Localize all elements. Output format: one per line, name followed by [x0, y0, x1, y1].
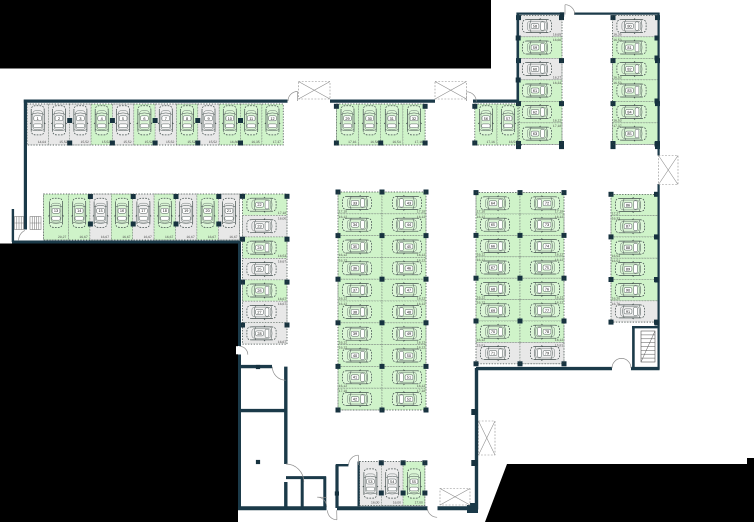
- svg-text:14: 14: [77, 209, 81, 213]
- svg-text:16: 16: [120, 209, 124, 213]
- svg-text:16,12: 16,12: [477, 258, 485, 262]
- svg-text:16,12: 16,12: [555, 338, 563, 342]
- svg-text:15,81: 15,81: [555, 343, 563, 347]
- svg-text:16,00: 16,00: [393, 500, 401, 504]
- svg-text:16,35: 16,35: [251, 140, 259, 144]
- svg-text:16,12: 16,12: [555, 295, 563, 299]
- svg-text:15,52: 15,52: [187, 140, 195, 144]
- svg-text:4: 4: [101, 117, 103, 121]
- svg-text:63: 63: [533, 132, 537, 136]
- svg-text:15,52: 15,52: [59, 140, 67, 144]
- svg-text:29: 29: [345, 117, 349, 121]
- svg-text:16,12: 16,12: [477, 301, 485, 305]
- svg-text:16,12: 16,12: [417, 346, 425, 350]
- svg-text:17,16: 17,16: [415, 140, 423, 144]
- svg-text:75: 75: [545, 266, 549, 270]
- svg-text:74: 74: [545, 245, 549, 249]
- svg-text:7: 7: [165, 117, 167, 121]
- svg-text:34: 34: [353, 223, 357, 227]
- svg-text:17,18: 17,18: [417, 389, 425, 393]
- svg-text:16,12: 16,12: [339, 258, 347, 262]
- svg-text:65: 65: [491, 223, 495, 227]
- svg-text:50: 50: [407, 354, 411, 358]
- svg-text:16,12: 16,12: [339, 346, 347, 350]
- svg-text:38: 38: [353, 310, 357, 314]
- svg-text:15: 15: [98, 209, 102, 213]
- svg-text:16,86: 16,86: [230, 140, 238, 144]
- svg-text:15,81: 15,81: [477, 343, 485, 347]
- svg-text:17,10: 17,10: [477, 210, 485, 214]
- svg-text:16,12: 16,12: [555, 215, 563, 219]
- svg-text:27: 27: [257, 310, 261, 314]
- svg-text:52: 52: [407, 398, 411, 402]
- svg-text:40: 40: [353, 354, 357, 358]
- svg-text:16,12: 16,12: [555, 301, 563, 305]
- svg-text:87: 87: [626, 225, 630, 229]
- svg-text:72: 72: [545, 202, 549, 206]
- svg-text:59: 59: [533, 46, 537, 50]
- svg-text:16,53: 16,53: [612, 254, 620, 258]
- svg-text:5: 5: [122, 117, 124, 121]
- svg-text:17,37: 17,37: [273, 140, 281, 144]
- svg-text:69: 69: [491, 309, 495, 313]
- svg-text:44: 44: [407, 223, 411, 227]
- svg-text:19: 19: [184, 209, 188, 213]
- svg-text:16,12: 16,12: [417, 253, 425, 257]
- svg-text:11: 11: [249, 117, 253, 121]
- svg-text:16,12: 16,12: [339, 302, 347, 306]
- svg-text:16,53: 16,53: [278, 254, 286, 258]
- svg-text:16,76: 16,76: [612, 302, 620, 306]
- svg-text:89: 89: [626, 267, 630, 271]
- svg-text:16,67: 16,67: [122, 235, 130, 239]
- svg-text:2: 2: [58, 117, 60, 121]
- svg-text:16,35: 16,35: [613, 33, 621, 37]
- svg-text:41: 41: [353, 376, 357, 380]
- svg-text:47: 47: [407, 289, 411, 293]
- svg-text:16,67: 16,67: [101, 235, 109, 239]
- svg-text:42: 42: [353, 398, 357, 402]
- svg-text:16,12: 16,12: [339, 253, 347, 257]
- svg-text:16,12: 16,12: [477, 253, 485, 257]
- svg-text:16,00: 16,00: [278, 216, 286, 220]
- svg-text:3: 3: [79, 117, 81, 121]
- svg-text:22: 22: [257, 203, 261, 207]
- svg-text:15,52: 15,52: [81, 140, 89, 144]
- svg-text:17,18: 17,18: [339, 210, 347, 214]
- svg-text:16,12: 16,12: [417, 384, 425, 388]
- svg-text:6: 6: [143, 117, 145, 121]
- svg-text:17,18: 17,18: [278, 211, 286, 215]
- svg-text:86: 86: [626, 203, 630, 207]
- svg-text:17,37: 17,37: [613, 124, 621, 128]
- svg-text:36: 36: [353, 267, 357, 271]
- svg-text:17: 17: [141, 209, 145, 213]
- svg-text:9: 9: [207, 117, 209, 121]
- svg-text:16,12: 16,12: [417, 340, 425, 344]
- svg-text:67: 67: [491, 266, 495, 270]
- svg-text:16,53: 16,53: [613, 81, 621, 85]
- svg-text:16,53: 16,53: [612, 259, 620, 263]
- svg-text:45: 45: [407, 245, 411, 249]
- svg-text:17,18: 17,18: [555, 210, 563, 214]
- svg-text:8: 8: [186, 117, 188, 121]
- svg-text:16,12: 16,12: [417, 297, 425, 301]
- svg-text:16,12: 16,12: [417, 258, 425, 262]
- svg-text:49: 49: [407, 332, 411, 336]
- svg-text:73: 73: [545, 223, 549, 227]
- svg-text:48: 48: [407, 310, 411, 314]
- svg-text:51: 51: [407, 376, 411, 380]
- svg-text:70: 70: [491, 330, 495, 334]
- svg-text:84: 84: [627, 111, 631, 115]
- svg-text:28: 28: [257, 332, 261, 336]
- svg-text:26: 26: [257, 289, 261, 293]
- svg-text:66: 66: [491, 245, 495, 249]
- svg-text:25: 25: [257, 268, 261, 272]
- svg-text:16,67: 16,67: [278, 297, 286, 301]
- svg-text:16,65: 16,65: [553, 33, 561, 37]
- svg-text:21: 21: [227, 209, 231, 213]
- svg-text:61: 61: [533, 89, 537, 93]
- svg-text:54: 54: [390, 480, 394, 484]
- svg-text:17,16: 17,16: [487, 140, 495, 144]
- svg-text:16,12: 16,12: [417, 302, 425, 306]
- svg-text:85: 85: [627, 132, 631, 136]
- svg-text:62: 62: [533, 111, 537, 115]
- svg-text:17,16: 17,16: [348, 140, 356, 144]
- svg-text:68: 68: [491, 287, 495, 291]
- svg-text:35: 35: [353, 245, 357, 249]
- svg-text:20,27: 20,27: [58, 235, 66, 239]
- svg-text:16,12: 16,12: [477, 338, 485, 342]
- svg-text:16,53: 16,53: [613, 119, 621, 123]
- svg-text:16,53: 16,53: [613, 38, 621, 42]
- svg-text:23: 23: [257, 225, 261, 229]
- svg-text:16,67: 16,67: [278, 259, 286, 263]
- svg-text:16,12: 16,12: [477, 295, 485, 299]
- svg-text:16,53: 16,53: [613, 76, 621, 80]
- svg-text:15,52: 15,52: [209, 140, 217, 144]
- svg-text:16,33: 16,33: [553, 81, 561, 85]
- svg-text:16,00: 16,00: [371, 500, 379, 504]
- svg-text:14,04: 14,04: [38, 140, 46, 144]
- svg-text:39: 39: [353, 332, 357, 336]
- svg-text:83: 83: [627, 89, 631, 93]
- svg-text:16,67: 16,67: [144, 235, 152, 239]
- svg-text:18: 18: [163, 209, 167, 213]
- svg-text:1: 1: [37, 117, 39, 121]
- svg-text:16,66: 16,66: [553, 38, 561, 42]
- svg-text:32: 32: [412, 117, 416, 121]
- svg-text:16,54: 16,54: [370, 140, 378, 144]
- svg-text:15,52: 15,52: [166, 140, 174, 144]
- svg-text:17,18: 17,18: [339, 389, 347, 393]
- svg-text:43: 43: [407, 201, 411, 205]
- svg-text:31: 31: [390, 117, 394, 121]
- svg-text:16,12: 16,12: [553, 119, 561, 123]
- svg-text:16,12: 16,12: [555, 258, 563, 262]
- svg-text:16,54: 16,54: [509, 140, 517, 144]
- svg-text:17,27: 17,27: [612, 211, 620, 215]
- svg-text:33: 33: [353, 201, 357, 205]
- svg-text:88: 88: [626, 246, 630, 250]
- svg-text:79: 79: [545, 352, 549, 356]
- svg-text:16,67: 16,67: [208, 235, 216, 239]
- svg-text:16,12: 16,12: [477, 215, 485, 219]
- svg-text:16,27: 16,27: [553, 76, 561, 80]
- svg-text:53: 53: [368, 480, 372, 484]
- svg-text:57: 57: [506, 117, 510, 121]
- svg-text:16,12: 16,12: [417, 215, 425, 219]
- svg-text:90: 90: [626, 289, 630, 293]
- svg-text:16,33: 16,33: [612, 217, 620, 221]
- svg-text:37: 37: [353, 289, 357, 293]
- svg-text:16,67: 16,67: [229, 235, 237, 239]
- svg-text:16,12: 16,12: [339, 384, 347, 388]
- svg-text:16,67: 16,67: [165, 235, 173, 239]
- svg-text:56: 56: [484, 117, 488, 121]
- svg-text:17,18: 17,18: [417, 210, 425, 214]
- svg-text:81: 81: [627, 46, 631, 50]
- svg-text:77: 77: [545, 309, 549, 313]
- svg-text:80: 80: [627, 25, 631, 29]
- svg-text:16,67: 16,67: [79, 235, 87, 239]
- svg-text:58: 58: [533, 25, 537, 29]
- svg-text:71: 71: [491, 352, 495, 356]
- svg-text:12: 12: [270, 117, 274, 121]
- svg-text:78: 78: [545, 330, 549, 334]
- svg-text:24: 24: [257, 246, 261, 250]
- svg-text:16,12: 16,12: [339, 297, 347, 301]
- svg-text:13: 13: [54, 209, 58, 213]
- svg-text:16,12: 16,12: [339, 215, 347, 219]
- svg-text:16,67: 16,67: [278, 302, 286, 306]
- svg-text:16,67: 16,67: [186, 235, 194, 239]
- svg-text:16,54: 16,54: [392, 140, 400, 144]
- svg-text:91: 91: [626, 310, 630, 314]
- svg-text:10: 10: [228, 117, 232, 121]
- svg-text:55: 55: [412, 480, 416, 484]
- svg-text:46: 46: [407, 267, 411, 271]
- svg-text:20: 20: [205, 209, 209, 213]
- svg-text:16,12: 16,12: [555, 253, 563, 257]
- svg-text:16,67: 16,67: [278, 340, 286, 344]
- svg-text:15,52: 15,52: [123, 140, 131, 144]
- svg-text:64: 64: [491, 202, 495, 206]
- svg-text:16,20: 16,20: [612, 297, 620, 301]
- svg-text:76: 76: [545, 287, 549, 291]
- svg-text:17,00: 17,00: [415, 500, 423, 504]
- svg-text:17,18: 17,18: [553, 124, 561, 128]
- svg-text:60: 60: [533, 68, 537, 72]
- svg-text:30: 30: [368, 117, 372, 121]
- svg-text:82: 82: [627, 68, 631, 72]
- svg-text:16,12: 16,12: [339, 340, 347, 344]
- svg-text:15,52: 15,52: [102, 140, 110, 144]
- svg-text:15,52: 15,52: [145, 140, 153, 144]
